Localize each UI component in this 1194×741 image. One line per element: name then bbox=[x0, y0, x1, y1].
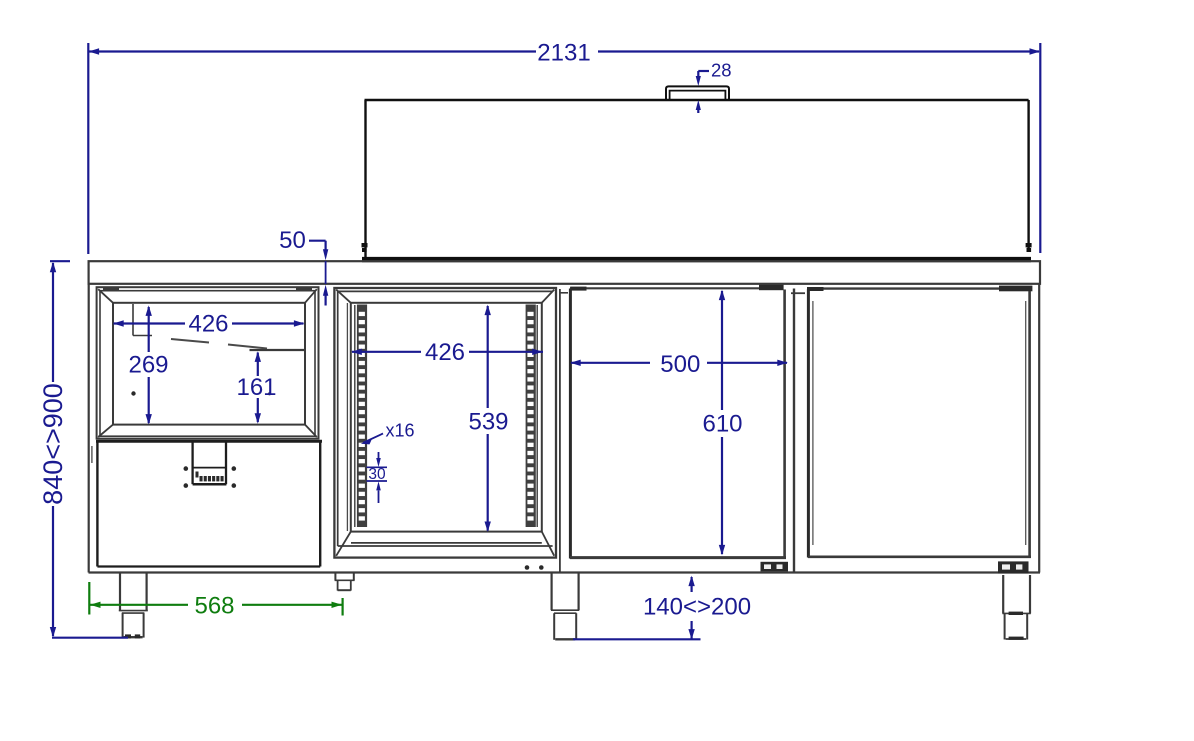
svg-text:539: 539 bbox=[468, 409, 508, 436]
svg-text:500: 500 bbox=[660, 351, 700, 378]
svg-text:426: 426 bbox=[188, 311, 228, 338]
svg-text:840<>900: 840<>900 bbox=[38, 383, 68, 505]
svg-text:269: 269 bbox=[128, 352, 168, 379]
svg-text:30: 30 bbox=[368, 466, 386, 483]
svg-text:426: 426 bbox=[425, 339, 465, 366]
svg-text:610: 610 bbox=[702, 411, 742, 438]
svg-text:2131: 2131 bbox=[537, 39, 590, 66]
svg-text:140<>200: 140<>200 bbox=[643, 594, 751, 621]
svg-text:x16: x16 bbox=[386, 421, 415, 441]
svg-text:50: 50 bbox=[279, 227, 306, 254]
svg-text:161: 161 bbox=[236, 374, 276, 401]
svg-text:568: 568 bbox=[194, 593, 234, 620]
svg-text:28: 28 bbox=[711, 60, 732, 81]
